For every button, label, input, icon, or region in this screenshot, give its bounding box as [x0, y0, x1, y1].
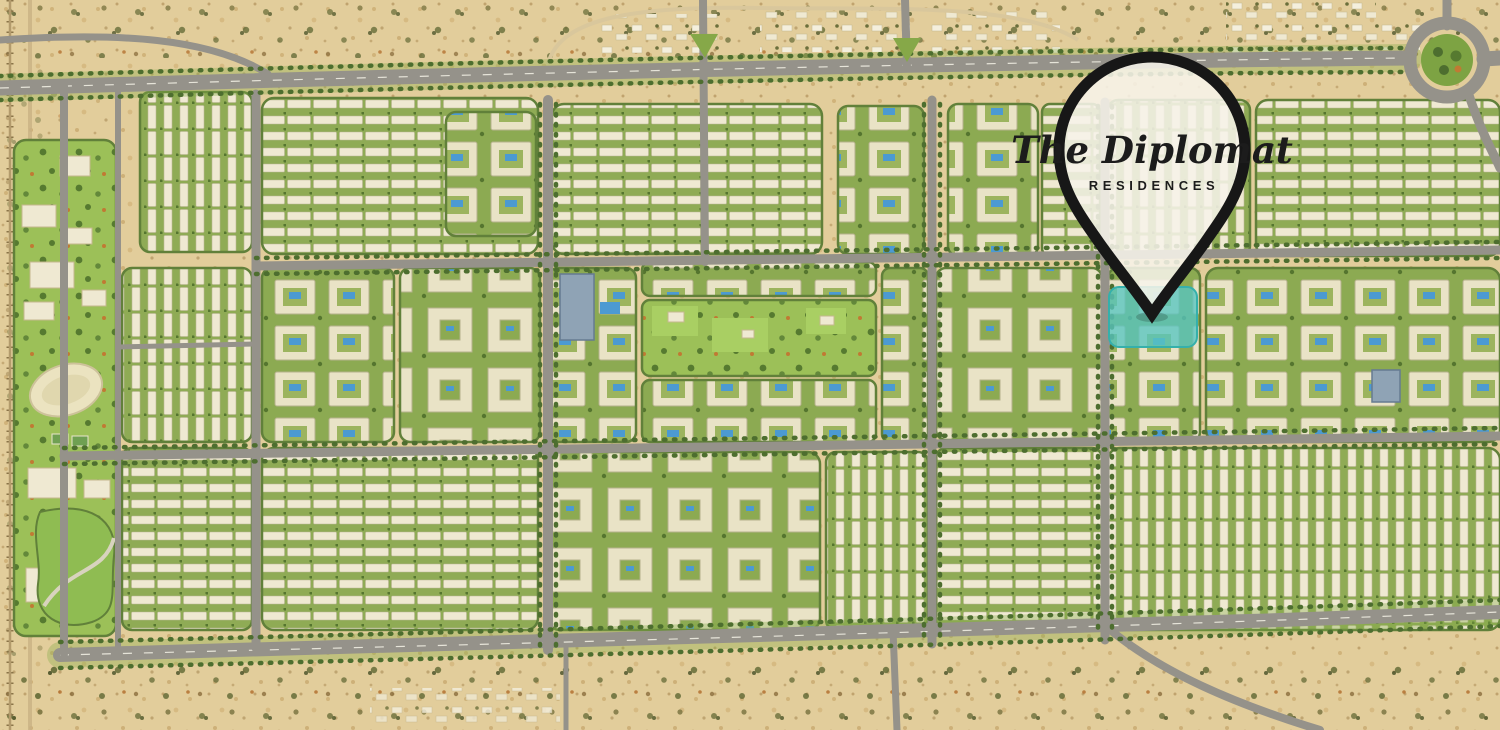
apartment-block [446, 112, 536, 236]
campus-building [82, 290, 106, 306]
highrise-building [560, 274, 594, 340]
roundabout-green [1421, 34, 1473, 86]
roundabout [1410, 23, 1484, 97]
desert-shrubs-bottom [0, 664, 1500, 730]
apartment-block [262, 268, 394, 442]
community-park [36, 509, 114, 625]
townhouse-block [140, 92, 252, 252]
campus-building [24, 302, 54, 320]
map-svg: The Diplomat RESIDENCES [0, 0, 1500, 730]
roundabout-tree [1451, 51, 1462, 62]
courtyard-apartment-block [400, 268, 540, 442]
apartment-block [838, 106, 924, 254]
campus-building [22, 205, 56, 227]
pavilion [742, 330, 754, 338]
pavilion [668, 312, 684, 322]
internal-road [118, 344, 256, 347]
village-patch [760, 8, 910, 52]
townhouse-block [826, 452, 928, 630]
masterplan-map: The Diplomat RESIDENCES [0, 0, 1500, 730]
south-stub-road [893, 630, 897, 730]
roundabout-tree [1455, 66, 1462, 73]
courtyard-apartment-block [548, 452, 820, 630]
townhouse-block [552, 104, 822, 254]
pavilion [820, 316, 834, 325]
courtyard-apartment-block [936, 268, 1102, 440]
apartment-block [882, 268, 928, 442]
apartment-block [948, 104, 1038, 256]
village-patch [370, 688, 560, 726]
townhouse-block [122, 268, 252, 442]
residential-blocks [122, 92, 1500, 630]
campus-building [66, 228, 92, 244]
townhouse-block [936, 448, 1102, 630]
apartment-block [642, 380, 876, 442]
swimming-pool [600, 302, 620, 314]
tennis-court [72, 436, 88, 446]
pin-title: The Diplomat [1011, 128, 1293, 172]
campus-building [84, 480, 110, 498]
townhouse-block [262, 448, 538, 630]
townhouse-block [122, 448, 252, 630]
highrise-building [1372, 370, 1400, 402]
apartment-block [1206, 268, 1500, 442]
campus-building [28, 468, 76, 498]
townhouse-block [1256, 100, 1500, 256]
roundabout-tree [1439, 65, 1449, 75]
pin-subtitle: RESIDENCES [1089, 178, 1220, 193]
lawn [712, 318, 768, 352]
roundabout-tree [1433, 47, 1443, 57]
